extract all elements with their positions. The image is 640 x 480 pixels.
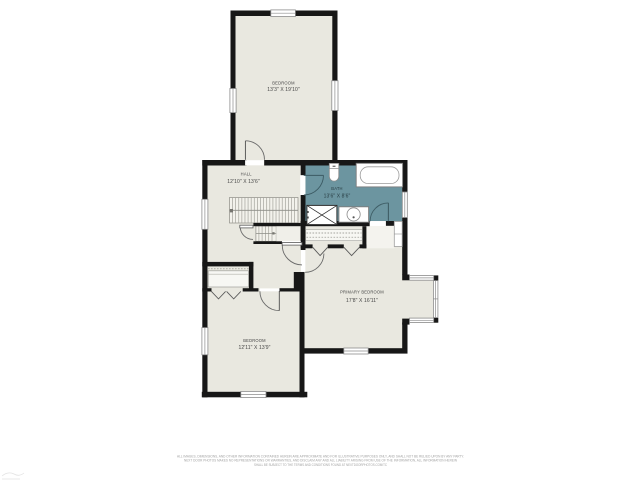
- svg-text:12'10" X 13'6": 12'10" X 13'6": [227, 179, 260, 185]
- svg-text:13'6" X 8'6": 13'6" X 8'6": [324, 194, 351, 200]
- svg-text:BATH: BATH: [331, 186, 342, 191]
- svg-text:17'8" X 16'11": 17'8" X 16'11": [346, 298, 378, 304]
- svg-text:12'11" X 13'9": 12'11" X 13'9": [238, 345, 270, 351]
- svg-text:SHALL BE SUBJECT TO THE TERMS: SHALL BE SUBJECT TO THE TERMS AND CONDIT…: [254, 463, 387, 467]
- svg-text:PRIMARY BEDROOM: PRIMARY BEDROOM: [340, 290, 384, 295]
- svg-text:BEDROOM: BEDROOM: [272, 80, 295, 85]
- svg-text:BEDROOM: BEDROOM: [243, 338, 266, 343]
- svg-text:HALL: HALL: [241, 172, 253, 177]
- svg-text:13'3" X 19'10": 13'3" X 19'10": [267, 87, 300, 93]
